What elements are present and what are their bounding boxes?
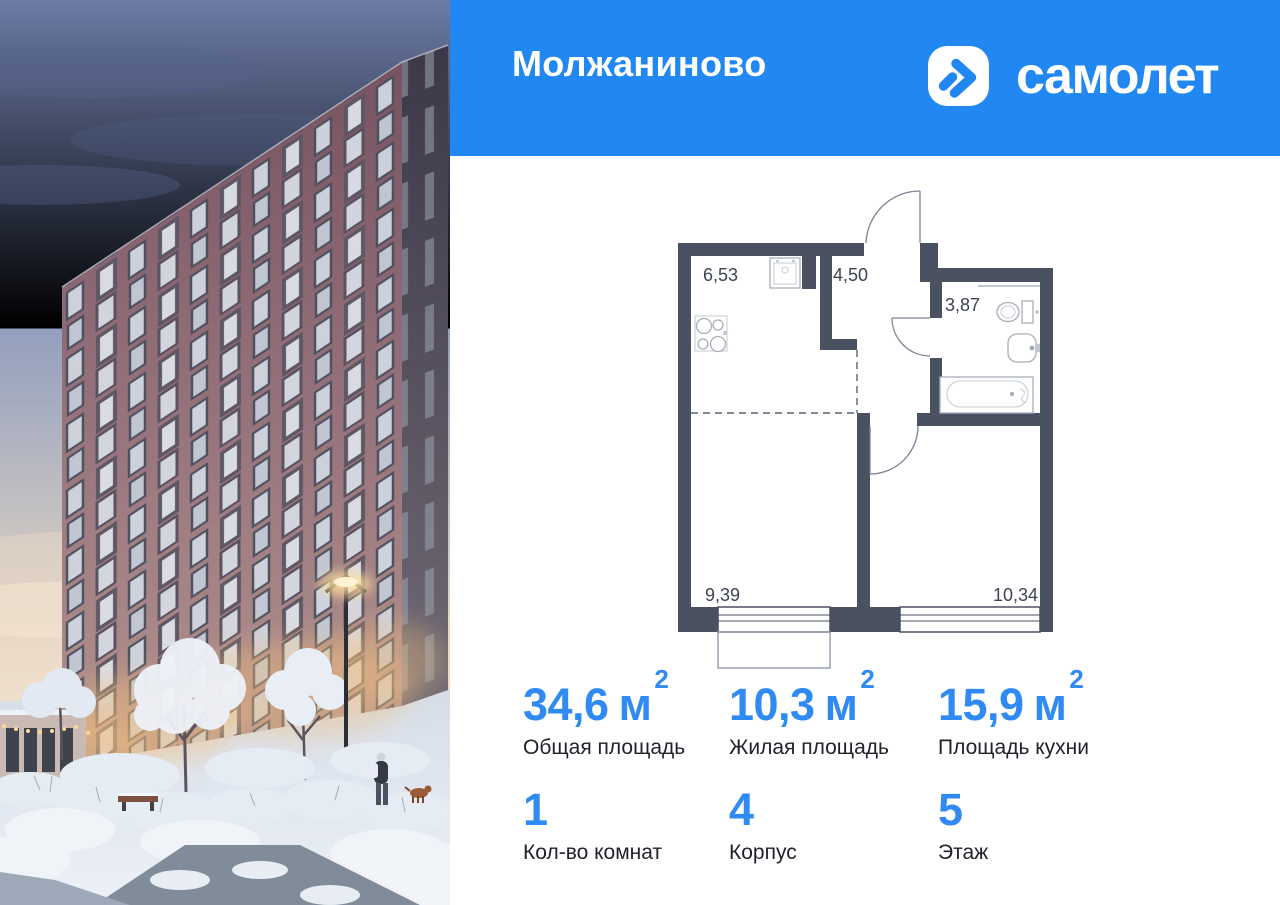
doors xyxy=(866,191,930,474)
balcony xyxy=(718,632,830,668)
room-area-kitchen-niche: 6,53 xyxy=(703,265,738,285)
stat-total-area-label: Общая площадь xyxy=(523,736,723,759)
stat-building: 4 Корпус xyxy=(729,787,929,864)
kitchen-sink-icon xyxy=(770,258,800,288)
bathtub-icon xyxy=(940,377,1033,413)
stat-floor-label: Этаж xyxy=(938,841,1138,864)
toilet-icon xyxy=(997,301,1039,323)
stat-total-area-value: 34,6м2 xyxy=(523,682,723,727)
stat-rooms-count-label: Кол-во комнат xyxy=(523,841,723,864)
stat-rooms-count: 1 Кол-во комнат xyxy=(523,787,723,864)
stat-kitchen-area-label: Площадь кухни xyxy=(938,736,1138,759)
stat-kitchen-area-value: 15,9м2 xyxy=(938,682,1138,727)
room-area-hallway: 4,50 xyxy=(833,265,868,285)
stat-total-area: 34,6м2 Общая площадь xyxy=(523,682,723,759)
stat-building-value: 4 xyxy=(729,787,929,832)
stat-living-area-label: Жилая площадь xyxy=(729,736,929,759)
building-photo xyxy=(0,0,450,905)
room-area-bathroom: 3,87 xyxy=(945,295,980,315)
header: Молжаниново самолет xyxy=(450,0,1280,156)
stat-floor-value: 5 xyxy=(938,787,1138,832)
brand-wordmark: самолет xyxy=(1016,46,1218,106)
stat-rooms-count-value: 1 xyxy=(523,787,723,832)
walls xyxy=(678,243,1053,632)
stove-icon xyxy=(695,316,727,352)
zoning-lines xyxy=(691,350,857,413)
listing-card: Молжаниново самолет xyxy=(0,0,1280,905)
room-area-room: 10,34 xyxy=(993,585,1038,605)
room-area-living-zone: 9,39 xyxy=(705,585,740,605)
stat-floor: 5 Этаж xyxy=(938,787,1138,864)
floor-plan: 6,53 4,50 3,87 9,39 10,34 xyxy=(670,185,1070,670)
stat-living-area: 10,3м2 Жилая площадь xyxy=(729,682,929,759)
washbasin-icon xyxy=(1008,334,1040,362)
samolet-arrow-icon xyxy=(928,46,989,106)
samolet-logo: самолет xyxy=(928,46,1218,106)
project-title: Молжаниново xyxy=(512,44,767,84)
stat-living-area-value: 10,3м2 xyxy=(729,682,929,727)
stat-kitchen-area: 15,9м2 Площадь кухни xyxy=(938,682,1138,759)
stat-building-label: Корпус xyxy=(729,841,929,864)
